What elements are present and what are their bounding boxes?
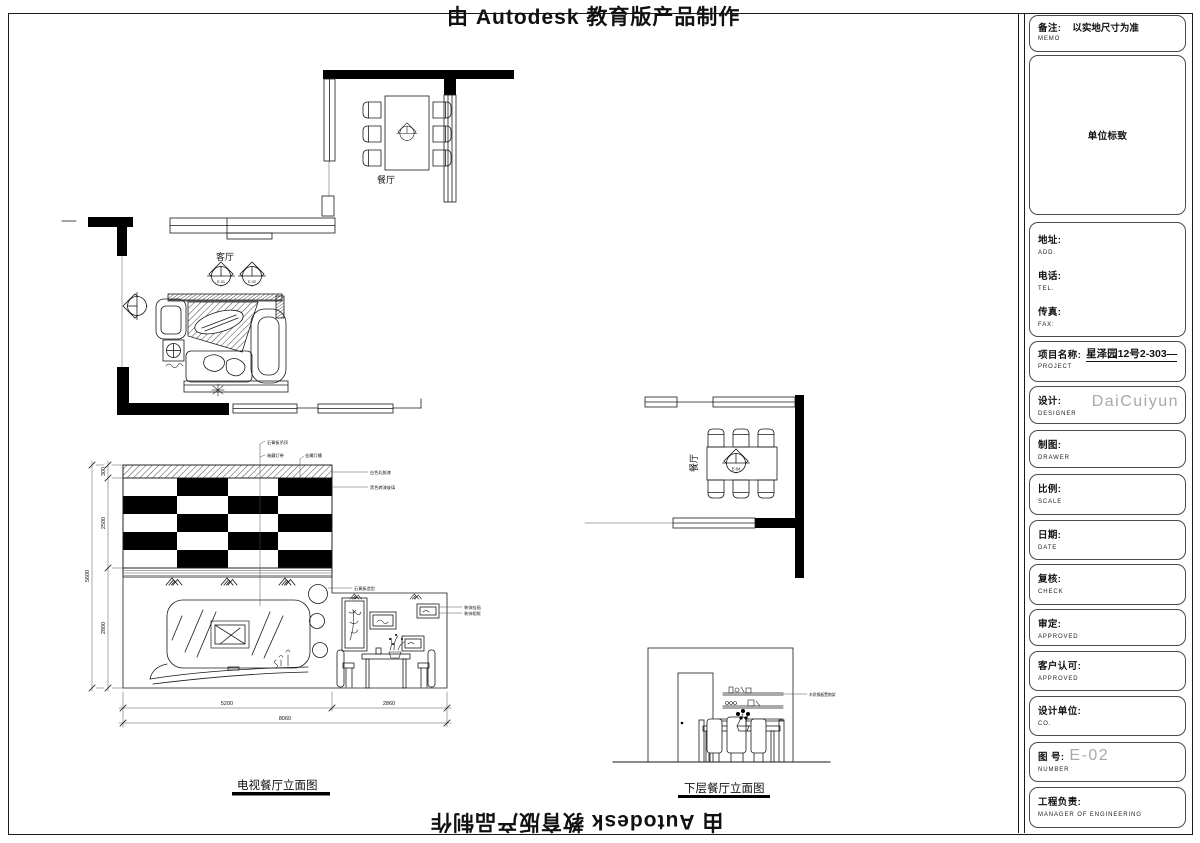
elevation-title-lower: 下层餐厅立面图 [684,781,765,795]
annotation-label: 白色乳胶漆 [370,469,391,476]
plan-dining-right: E-04 餐厅 [585,395,804,578]
designer-label: 设计: [1038,396,1061,407]
memo-sub: MEMO [1038,36,1177,42]
titleblock-date: 日期: DATE [1029,520,1186,560]
titleblock-number: 图 号: E-02 NUMBER [1029,742,1186,782]
marker-label-e02: E-02 [248,280,256,284]
titleblock-designer: 设计: DESIGNER DaiCuiyun [1029,386,1186,424]
date-label: 日期: [1038,530,1061,541]
titleblock-check: 复核: CHECK [1029,564,1186,605]
title-block: 备注: 以实地尺寸为准 MEMO 单位标致 地址: ADD. 电话: TEL. … [1029,0,1186,843]
company-sub: CO. [1038,721,1177,727]
room-label-dining-top: 餐厅 [377,174,395,185]
dim-2860: 2860 [383,701,395,707]
titleblock-drawer: 制图: DRAWER [1029,430,1186,468]
titleblock-company: 设计单位: CO. [1029,696,1186,736]
glass-panel [167,600,310,668]
plan-living-room: 客厅 E-01 E-02 [117,251,421,415]
number-sub: NUMBER [1038,767,1177,773]
memo-value: 以实地尺寸为准 [1072,20,1139,34]
drawer-label: 制图: [1038,440,1061,451]
marker-label-e01: E-01 [217,280,225,284]
tel-label: 电话: [1038,271,1061,282]
elevation-tv-dining: 石膏板吊顶 暗藏灯带 金属灯槽 白色乳胶漆 黑色烤漆玻璃 石膏板造型 装饰挂画 … [85,439,482,796]
elevation-lower-dining: 木质搁板置物架 [613,648,836,798]
designer-sub: DESIGNER [1038,411,1177,417]
designer-name-value: DaiCuiyun [1092,393,1179,411]
dim-300: 300 [101,467,107,476]
client-label: 客户认可: [1038,661,1081,672]
marker-label-e04: E-04 [732,467,742,472]
number-label: 图 号: [1038,749,1064,763]
drawer-sub: DRAWER [1038,455,1177,461]
memo-label: 备注: [1038,20,1061,34]
shelf-decor [275,650,291,668]
checker-wall [123,478,332,568]
annotation-label: 装饰相框 [464,610,482,617]
tel-sub: TEL. [1038,286,1177,292]
dining-table-elevation [362,654,410,659]
room-label-dining-right: 餐厅 [688,454,699,472]
dim-5600: 5600 [85,570,91,582]
client-sub: APPROVED [1038,676,1177,682]
sofa-right-arm [251,309,286,383]
titleblock-logo: 单位标致 [1029,55,1186,215]
annotation-label: 金属灯槽 [305,452,323,459]
dim-2800: 2800 [101,622,107,634]
check-label: 复核: [1038,574,1061,585]
check-sub: CHECK [1038,589,1177,595]
annotation-label: 石膏板造型 [354,585,375,592]
drawing-number-value: E-02 [1069,747,1109,765]
titleblock-manager: 工程负责: MANAGER OF ENGINEERING [1029,787,1186,828]
approve-label: 审定: [1038,619,1061,630]
project-name-value: 星泽园12号2-303— [1086,346,1177,362]
cad-sheet: 由 Autodesk 教育版产品制作 由 Autodesk 教育版产品制作 [0,0,1200,843]
counter-cabinet [62,217,335,367]
plan-dining-top: 餐厅 [322,70,514,216]
titleblock-contact: 地址: ADD. 电话: TEL. 传真: FAX: [1029,222,1186,337]
date-sub: DATE [1038,545,1177,551]
project-sub: PROJECT [1038,364,1177,370]
titleblock-approve: 审定: APPROVED [1029,609,1186,646]
dim-8060: 8060 [279,716,291,722]
fax-label: 传真: [1038,307,1061,318]
annotation-label: 木质搁板置物架 [809,692,836,697]
elevation-marker-icon [123,293,147,320]
scale-label: 比例: [1038,484,1061,495]
chairs-elevation [707,717,766,762]
dim-2500: 2500 [101,517,107,529]
elevation-title-tv: 电视餐厅立面图 [237,778,318,792]
annotation-label: 石膏板吊顶 [267,439,289,446]
shelf-items [726,687,761,706]
fax-sub: FAX: [1038,322,1177,328]
annotation-label: 暗藏灯带 [267,452,284,459]
manager-label: 工程负责: [1038,797,1081,808]
titleblock-memo: 备注: 以实地尺寸为准 MEMO [1029,15,1186,52]
annotation-label: 装饰挂画 [464,604,481,611]
company-label: 设计单位: [1038,706,1081,717]
titleblock-divider-inner [1024,13,1025,833]
address-sub: ADD. [1038,250,1177,256]
manager-sub: MANAGER OF ENGINEERING [1038,812,1177,818]
address-label: 地址: [1038,235,1061,246]
room-label-living: 客厅 [216,251,234,262]
scale-sub: SCALE [1038,499,1177,505]
annotation-label: 黑色烤漆玻璃 [370,484,395,491]
armchair [156,299,186,339]
logo-text: 单位标致 [1088,128,1128,142]
wall-art-small [370,612,396,629]
section-marker-icon [397,123,417,141]
floor-plant [212,384,224,396]
titleblock-client: 客户认可: APPROVED [1029,651,1186,691]
project-label: 项目名称: [1038,347,1081,361]
titleblock-project: 项目名称: 星泽园12号2-303— PROJECT [1029,341,1186,382]
approve-sub: APPROVED [1038,634,1177,640]
titleblock-scale: 比例: SCALE [1029,474,1186,515]
wall-art-tall [342,598,367,651]
drawing-area: 餐厅 客厅 E-01 E-02 [0,0,1020,843]
dim-5200: 5200 [221,701,233,707]
